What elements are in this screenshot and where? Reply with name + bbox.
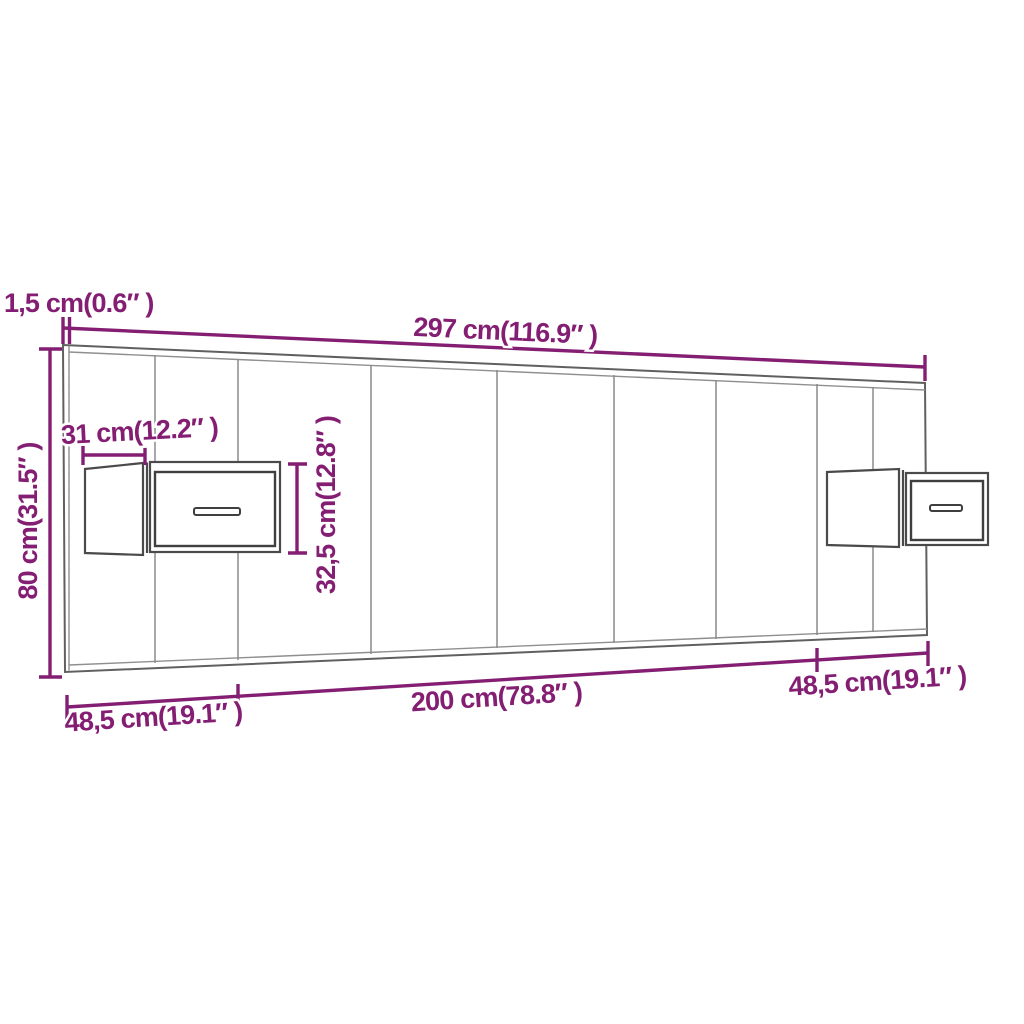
- panel-height-label: 80 cm(31.5″ ): [13, 442, 43, 599]
- cabinet-height-label: 32,5 cm(12.8″ ): [311, 416, 341, 594]
- left-nightstand-side-panel: [85, 463, 143, 555]
- right-nightstand: [827, 469, 988, 547]
- diagram-stage: 1,5 cm(0.6″ ) 297 cm(116.9″ ) 80 cm(31.5…: [0, 0, 1024, 1024]
- right-nightstand-handle: [930, 505, 962, 511]
- right-nightstand-side-panel: [827, 469, 899, 547]
- headboard-dimension-diagram: 1,5 cm(0.6″ ) 297 cm(116.9″ ) 80 cm(31.5…: [0, 0, 1024, 1024]
- left-segment-label: 48,5 cm(19.1″ ): [64, 696, 244, 737]
- left-nightstand: [85, 462, 280, 555]
- right-segment-label: 48,5 cm(19.1″ ): [788, 660, 968, 701]
- left-nightstand-handle: [194, 508, 240, 515]
- panel-thickness-label: 1,5 cm(0.6″ ): [4, 288, 154, 318]
